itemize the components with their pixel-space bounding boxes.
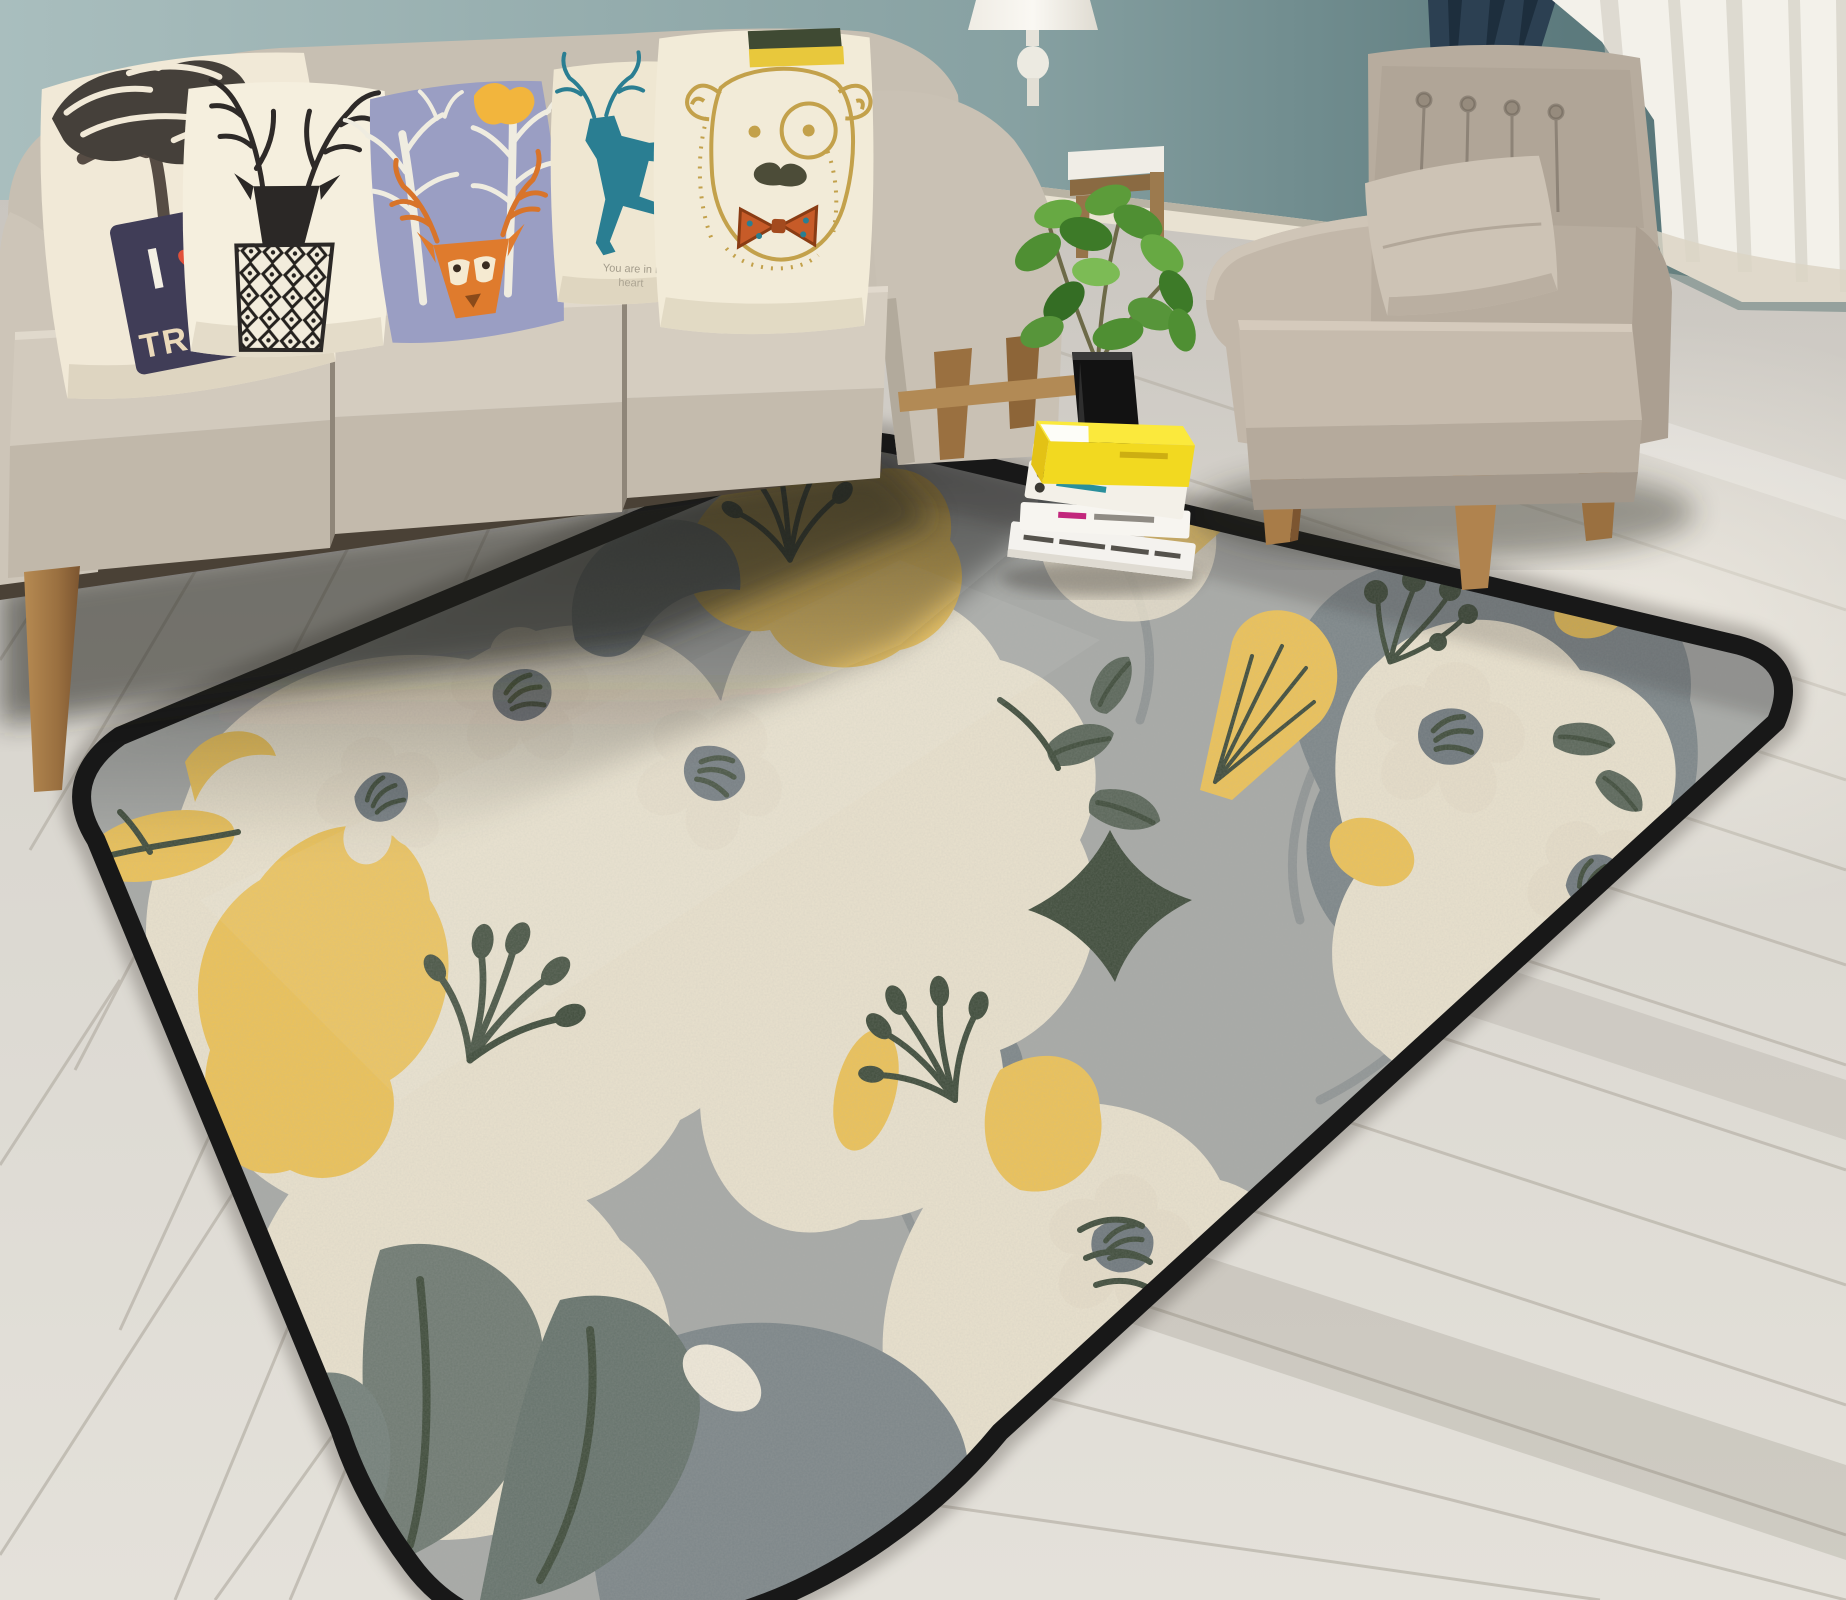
scene-illustration: I ♥ TREES — [0, 0, 1846, 1600]
pillow-hipster-deer — [643, 19, 882, 341]
deer-caption-line2: heart — [618, 277, 643, 290]
armchair-lumbar-pillow — [1362, 152, 1562, 320]
armchair-seat — [1238, 320, 1642, 428]
deer-neck-pattern — [231, 240, 333, 355]
pillow-geometric-deer — [173, 76, 398, 364]
living-room-scene: I ♥ TREES — [0, 0, 1846, 1600]
lamp-shade — [968, 0, 1098, 30]
